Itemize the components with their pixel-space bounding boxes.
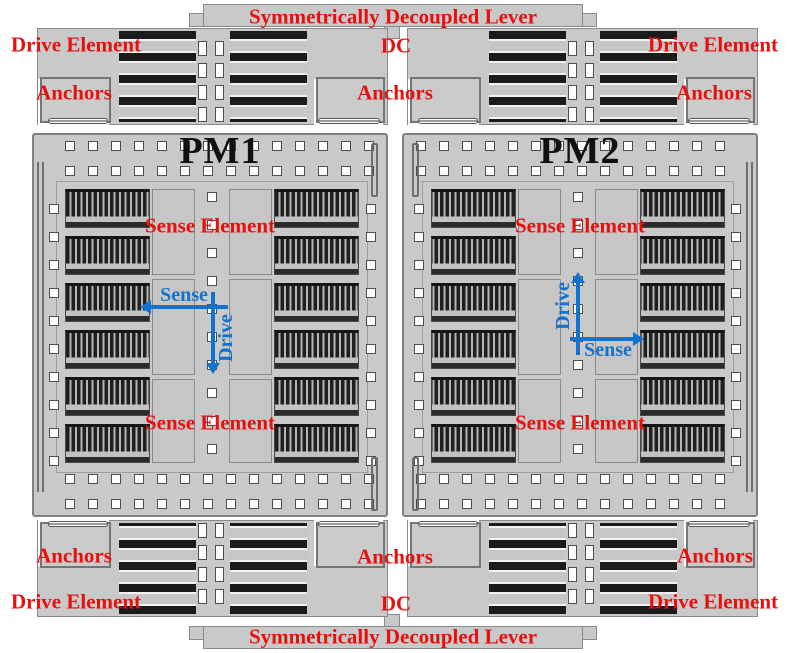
frame-hole	[341, 474, 351, 484]
frame-hole	[731, 204, 741, 214]
pm1-sense-element-bottom-label: Sense Element	[145, 413, 275, 434]
frame-hole	[341, 499, 351, 509]
pm2-drive-arrow-line	[576, 282, 580, 355]
drive-spine-slot	[585, 107, 594, 122]
anchors-bottom-left-label: Anchors	[36, 546, 112, 567]
frame-hole	[157, 141, 167, 151]
spine-hole	[207, 388, 217, 398]
frame-hole	[414, 400, 424, 410]
drive-spine-slot	[198, 107, 207, 122]
frame-hole	[554, 499, 564, 509]
anchors-top-center-label: Anchors	[357, 83, 433, 104]
frame-hole	[366, 232, 376, 242]
frame-hole	[485, 141, 495, 151]
frame-hole	[65, 474, 75, 484]
frame-hole	[731, 400, 741, 410]
drive-spine-slot	[568, 41, 577, 56]
pm1-sense-arrow-label: Sense	[160, 285, 208, 305]
drive-comb	[489, 523, 566, 614]
frame-hole	[623, 499, 633, 509]
frame-hole	[731, 260, 741, 270]
frame-hole	[414, 204, 424, 214]
suspension-beam	[37, 162, 44, 492]
frame-hole	[49, 344, 59, 354]
spine-hole	[207, 248, 217, 258]
drive-spine-slot	[585, 41, 594, 56]
drive-spine-slot	[585, 85, 594, 100]
spring-slit	[318, 521, 380, 527]
frame-hole	[439, 499, 449, 509]
frame-hole	[731, 344, 741, 354]
frame-hole	[111, 499, 121, 509]
corner-spring	[412, 143, 419, 197]
drive-spine-slot	[198, 63, 207, 78]
frame-hole	[731, 372, 741, 382]
frame-hole	[623, 474, 633, 484]
drive-spine-slot	[585, 63, 594, 78]
pm1-sense-arrowhead-left	[140, 300, 151, 314]
pm2-sense-arrow-label: Sense	[584, 340, 632, 360]
drive-comb	[489, 31, 566, 122]
frame-hole	[295, 499, 305, 509]
frame-hole	[577, 499, 587, 509]
spine-hole	[573, 444, 583, 454]
drive-element-bottom-left-label: Drive Element	[11, 592, 141, 613]
frame-hole	[414, 372, 424, 382]
frame-hole	[134, 499, 144, 509]
drive-comb	[230, 31, 307, 122]
frame-hole	[669, 166, 679, 176]
drive-spine-slot	[568, 85, 577, 100]
pm2-sense-element-bottom-label: Sense Element	[515, 413, 645, 434]
drive-spine-slot	[215, 523, 224, 538]
frame-hole	[272, 499, 282, 509]
frame-hole	[88, 474, 98, 484]
frame-hole	[485, 166, 495, 176]
frame-hole	[65, 141, 75, 151]
frame-hole	[646, 141, 656, 151]
frame-hole	[715, 166, 725, 176]
sense-comb-block	[431, 189, 516, 228]
frame-hole	[49, 260, 59, 270]
frame-hole	[439, 141, 449, 151]
frame-hole	[49, 372, 59, 382]
drive-element-bottom-right-label: Drive Element	[648, 592, 778, 613]
frame-hole	[318, 499, 328, 509]
lever-top-label: Symmetrically Decoupled Lever	[249, 7, 537, 28]
frame-hole	[88, 499, 98, 509]
sense-comb-block	[431, 236, 516, 275]
dc-bottom-label: DC	[381, 594, 411, 615]
frame-hole	[49, 232, 59, 242]
frame-hole	[49, 288, 59, 298]
drive-spine-slot	[215, 567, 224, 582]
drive-comb	[230, 523, 307, 614]
frame-hole	[111, 474, 121, 484]
frame-hole	[623, 141, 633, 151]
frame-hole	[669, 141, 679, 151]
frame-hole	[414, 232, 424, 242]
frame-hole	[249, 474, 259, 484]
frame-hole	[715, 141, 725, 151]
drive-spine-slot	[568, 589, 577, 604]
corner-spring	[371, 457, 378, 511]
frame-hole	[554, 474, 564, 484]
frame-hole	[439, 166, 449, 176]
frame-hole	[134, 474, 144, 484]
frame-hole	[157, 499, 167, 509]
spine-hole	[207, 444, 217, 454]
frame-hole	[508, 166, 518, 176]
sense-comb-block	[65, 377, 150, 416]
frame-hole	[366, 204, 376, 214]
pm2-drive-arrow-label: Drive	[553, 282, 573, 330]
sense-comb-block	[431, 377, 516, 416]
frame-hole	[414, 288, 424, 298]
sense-comb-block	[431, 283, 516, 322]
frame-hole	[366, 260, 376, 270]
spring-slit	[418, 521, 478, 527]
spine-hole	[573, 388, 583, 398]
drive-spine-slot	[568, 523, 577, 538]
mems-gyroscope-diagram: Symmetrically Decoupled Lever Drive Elem…	[0, 0, 790, 653]
dc-top-label: DC	[381, 36, 411, 57]
frame-hole	[272, 166, 282, 176]
frame-hole	[318, 474, 328, 484]
frame-hole	[134, 166, 144, 176]
frame-hole	[692, 474, 702, 484]
frame-hole	[318, 166, 328, 176]
frame-hole	[226, 499, 236, 509]
anchors-bottom-right-label: Anchors	[677, 546, 753, 567]
frame-hole	[249, 499, 259, 509]
anchors-top-right-label: Anchors	[676, 83, 752, 104]
frame-hole	[111, 166, 121, 176]
sense-comb-block	[274, 424, 359, 463]
frame-hole	[731, 428, 741, 438]
frame-hole	[366, 428, 376, 438]
drive-spine-slot	[215, 41, 224, 56]
frame-hole	[600, 474, 610, 484]
frame-hole	[692, 499, 702, 509]
frame-hole	[646, 166, 656, 176]
frame-hole	[88, 166, 98, 176]
drive-spine-slot	[198, 523, 207, 538]
frame-hole	[157, 166, 167, 176]
drive-element-top-right-label: Drive Element	[648, 35, 778, 56]
drive-spine-slot	[585, 523, 594, 538]
sense-comb-block	[274, 377, 359, 416]
drive-spine-slot	[568, 567, 577, 582]
frame-hole	[623, 166, 633, 176]
pm1-sense-element-top-label: Sense Element	[145, 216, 275, 237]
spine-hole	[573, 248, 583, 258]
lever-bottom-label: Symmetrically Decoupled Lever	[249, 627, 537, 648]
frame-hole	[65, 166, 75, 176]
frame-hole	[692, 166, 702, 176]
drive-element-top-left-label: Drive Element	[11, 35, 141, 56]
frame-hole	[508, 141, 518, 151]
frame-hole	[65, 499, 75, 509]
sense-comb-block	[65, 424, 150, 463]
frame-hole	[414, 260, 424, 270]
frame-hole	[577, 474, 587, 484]
sense-comb-block	[640, 330, 725, 369]
frame-hole	[49, 456, 59, 466]
drive-spine-slot	[198, 589, 207, 604]
frame-hole	[203, 499, 213, 509]
frame-hole	[295, 474, 305, 484]
drive-spine-slot	[215, 63, 224, 78]
spring-slit	[688, 118, 750, 124]
frame-hole	[731, 232, 741, 242]
drive-spine-slot	[198, 41, 207, 56]
frame-hole	[439, 474, 449, 484]
sense-comb-block	[65, 283, 150, 322]
frame-hole	[485, 499, 495, 509]
frame-hole	[341, 166, 351, 176]
frame-hole	[692, 141, 702, 151]
frame-hole	[414, 428, 424, 438]
pm1-title: PM1	[179, 132, 260, 170]
pm1-drive-arrow-label: Drive	[216, 314, 236, 362]
sense-comb-block	[65, 189, 150, 228]
frame-hole	[462, 141, 472, 151]
frame-hole	[295, 141, 305, 151]
spring-slit	[418, 118, 478, 124]
frame-hole	[531, 499, 541, 509]
frame-hole	[366, 344, 376, 354]
drive-spine-slot	[568, 107, 577, 122]
frame-hole	[180, 499, 190, 509]
frame-hole	[366, 400, 376, 410]
frame-hole	[111, 141, 121, 151]
sense-comb-block	[274, 236, 359, 275]
anchors-bottom-center-label: Anchors	[357, 547, 433, 568]
sense-comb-block	[274, 189, 359, 228]
frame-hole	[485, 474, 495, 484]
drive-spine-slot	[198, 85, 207, 100]
frame-hole	[508, 499, 518, 509]
frame-hole	[366, 372, 376, 382]
spine-hole	[207, 192, 217, 202]
frame-hole	[295, 166, 305, 176]
sense-comb-block	[431, 330, 516, 369]
pm1-drive-arrowhead-down	[206, 363, 220, 374]
frame-hole	[49, 428, 59, 438]
proof-mass-frame	[402, 133, 758, 517]
sense-comb-block	[274, 330, 359, 369]
drive-spine-slot	[198, 545, 207, 560]
frame-hole	[88, 141, 98, 151]
frame-hole	[508, 474, 518, 484]
frame-hole	[646, 499, 656, 509]
spring-slit	[48, 521, 108, 527]
spring-slit	[688, 521, 750, 527]
frame-hole	[49, 204, 59, 214]
frame-hole	[180, 474, 190, 484]
drive-spine-slot	[585, 589, 594, 604]
frame-hole	[462, 166, 472, 176]
frame-hole	[134, 141, 144, 151]
pm2-sense-element-top-label: Sense Element	[515, 216, 645, 237]
pm2-title: PM2	[539, 132, 620, 170]
drive-spine-slot	[215, 589, 224, 604]
frame-hole	[462, 499, 472, 509]
sense-comb-block	[640, 283, 725, 322]
frame-hole	[731, 456, 741, 466]
frame-hole	[715, 499, 725, 509]
frame-hole	[366, 316, 376, 326]
lever-tab	[582, 13, 597, 27]
frame-hole	[341, 141, 351, 151]
drive-spine-slot	[198, 567, 207, 582]
corner-spring	[412, 457, 419, 511]
spring-slit	[318, 118, 380, 124]
frame-hole	[646, 474, 656, 484]
frame-hole	[203, 474, 213, 484]
corner-spring	[371, 143, 378, 197]
frame-hole	[414, 316, 424, 326]
drive-spine-slot	[215, 107, 224, 122]
spine-hole	[573, 192, 583, 202]
drive-spine-slot	[568, 63, 577, 78]
lever-tab	[189, 626, 204, 640]
frame-hole	[731, 316, 741, 326]
drive-spine-slot	[585, 545, 594, 560]
drive-spine-slot	[215, 545, 224, 560]
frame-hole	[226, 474, 236, 484]
frame-hole	[531, 474, 541, 484]
drive-spine-slot	[215, 85, 224, 100]
spine-hole	[573, 360, 583, 370]
frame-hole	[731, 288, 741, 298]
sense-comb-block	[65, 236, 150, 275]
sense-comb-block	[640, 189, 725, 228]
frame-hole	[669, 499, 679, 509]
spring-slit	[48, 118, 108, 124]
drive-spine-slot	[568, 545, 577, 560]
sense-comb-block	[640, 424, 725, 463]
sense-comb-block	[640, 236, 725, 275]
frame-hole	[49, 316, 59, 326]
drive-spine-slot	[585, 567, 594, 582]
frame-hole	[600, 499, 610, 509]
pm2-sense-arrowhead-right	[633, 332, 644, 346]
lever-tab	[582, 626, 597, 640]
frame-hole	[157, 474, 167, 484]
frame-hole	[318, 141, 328, 151]
sense-comb-block	[640, 377, 725, 416]
frame-hole	[272, 141, 282, 151]
anchors-top-left-label: Anchors	[36, 83, 112, 104]
sense-comb-block	[431, 424, 516, 463]
frame-hole	[49, 400, 59, 410]
frame-hole	[715, 474, 725, 484]
frame-hole	[462, 474, 472, 484]
spine-hole	[207, 276, 217, 286]
sense-comb-block	[65, 330, 150, 369]
frame-hole	[272, 474, 282, 484]
proof-mass-frame	[32, 133, 388, 517]
frame-hole	[366, 288, 376, 298]
lever-tab	[189, 13, 204, 27]
suspension-beam	[746, 162, 753, 492]
frame-hole	[414, 344, 424, 354]
sense-comb-block	[274, 283, 359, 322]
frame-hole	[669, 474, 679, 484]
